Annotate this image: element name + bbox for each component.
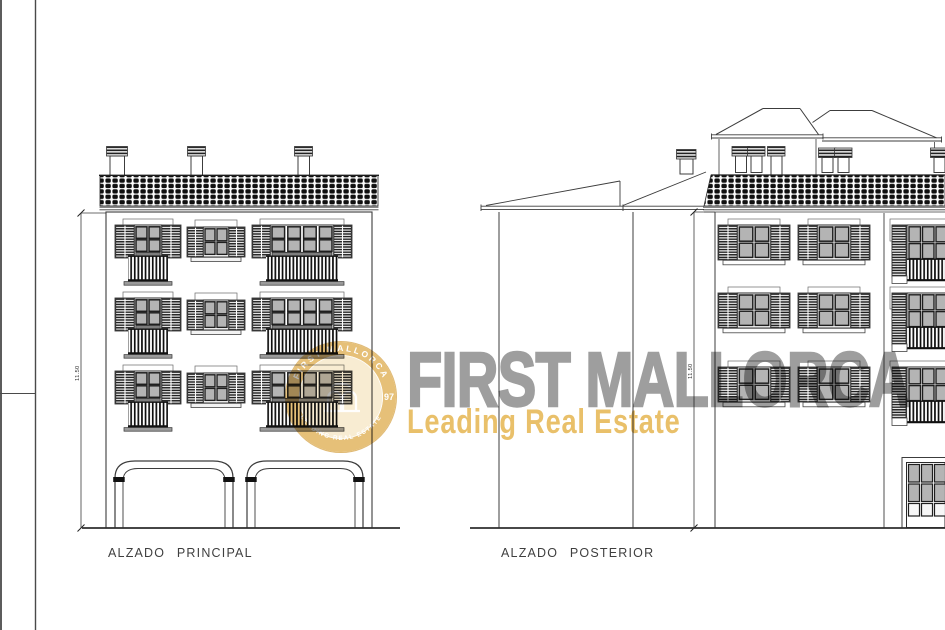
brand-tagline: Leading Real Estate	[407, 402, 680, 441]
brand-seal: FIRST MALLORCA LEADING REAL ESTATE 97	[286, 342, 397, 453]
glazed-door	[902, 458, 945, 529]
watermark: FIRST MALLORCA LEADING REAL ESTATE 97 FI…	[286, 337, 910, 453]
roof-tiles	[703, 175, 945, 212]
elevation-principal-label: ALZADO PRINCIPAL	[108, 546, 253, 560]
elevation-posterior: 11.50 ALZADO POSTERIOR	[470, 109, 945, 561]
seal-year: 97	[384, 392, 394, 402]
elevation-posterior-label: ALZADO POSTERIOR	[501, 546, 654, 560]
sheet-frame	[0, 0, 36, 630]
chimneys	[107, 147, 313, 176]
drawing-sheet: 11.50 ALZADO PRINCIPAL	[0, 0, 945, 630]
height-dimension-principal: 11.50	[75, 365, 81, 381]
roof-tiles	[99, 175, 379, 210]
dimension-principal: 11.50	[75, 210, 106, 532]
